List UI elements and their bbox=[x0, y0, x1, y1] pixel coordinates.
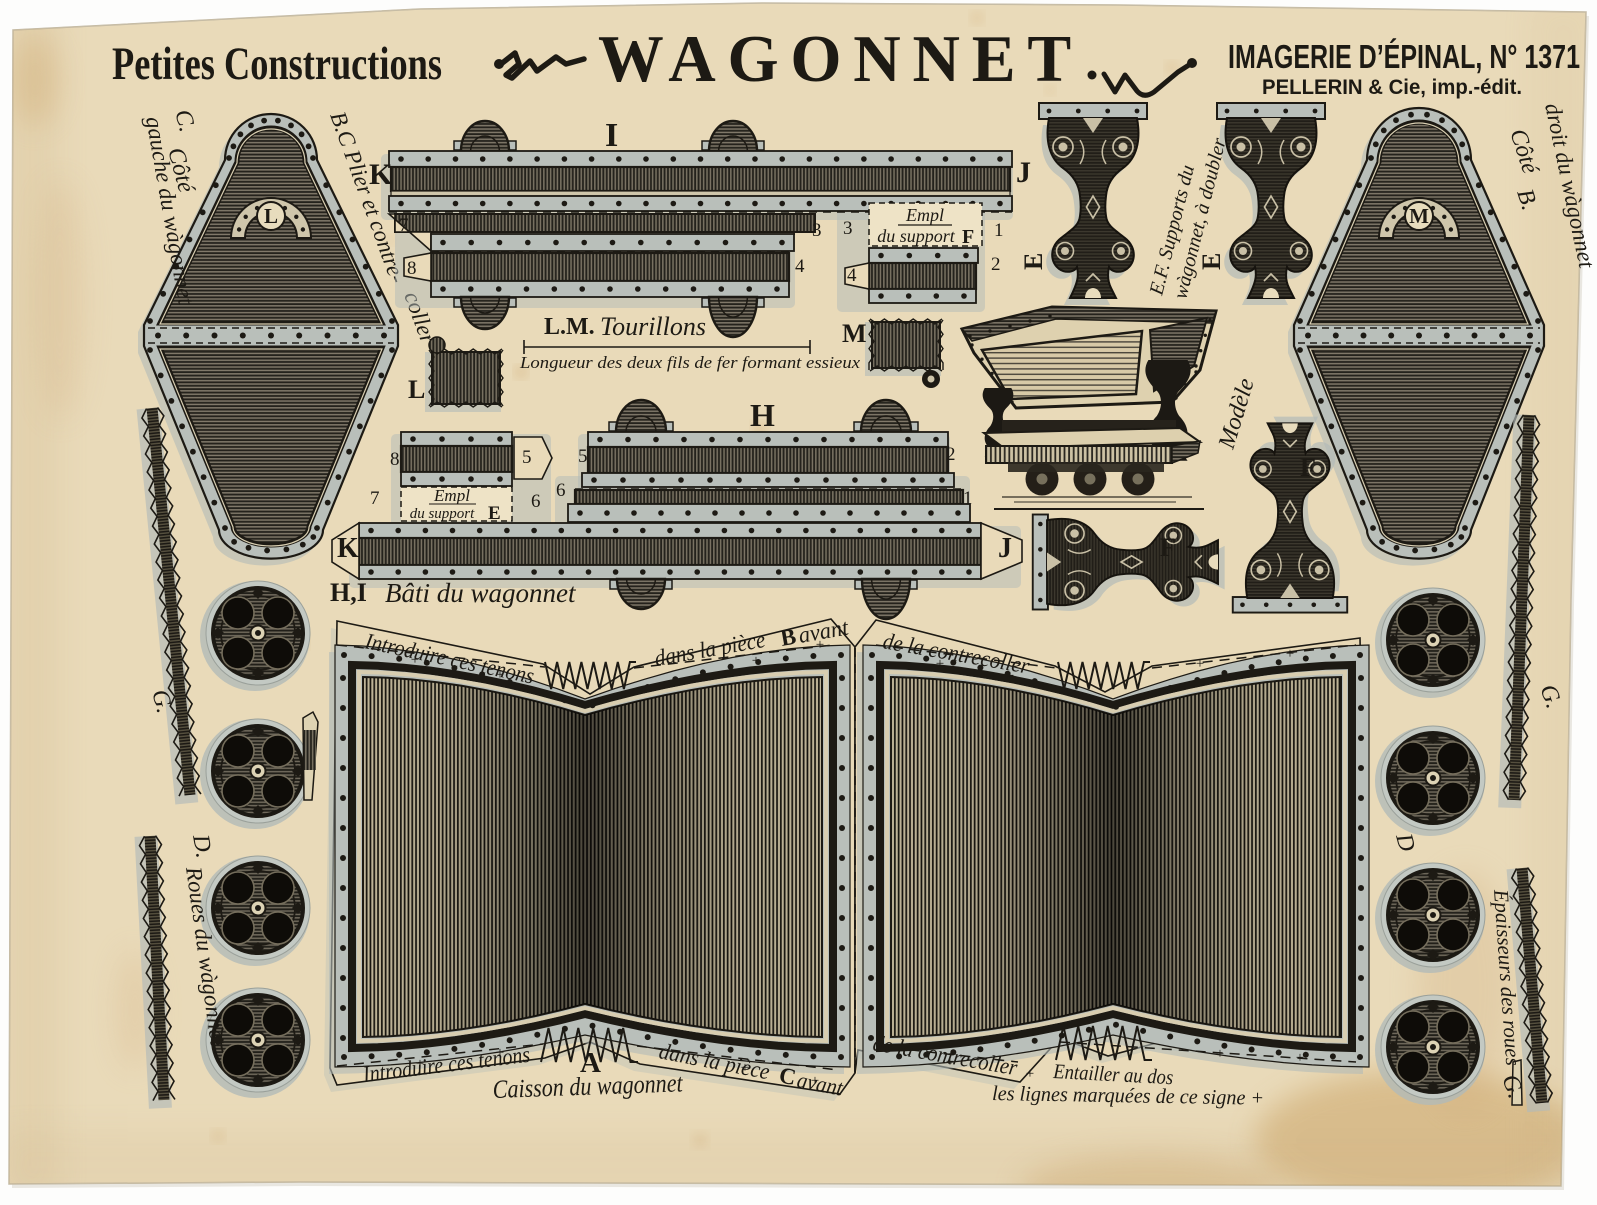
svg-text:WAGONNET: WAGONNET bbox=[598, 22, 1083, 96]
svg-text:8: 8 bbox=[407, 258, 417, 279]
svg-text:6: 6 bbox=[531, 491, 541, 512]
svg-text:E: E bbox=[488, 503, 501, 524]
svg-text:H,I: H,I bbox=[330, 578, 367, 607]
svg-text:6: 6 bbox=[556, 480, 566, 501]
svg-text:les lignes marquées de ce sign: les lignes marquées de ce signe + bbox=[992, 1081, 1264, 1110]
svg-text:+: + bbox=[1196, 656, 1204, 672]
svg-text:I: I bbox=[605, 117, 618, 154]
svg-text:Bâti du wagonnet: Bâti du wagonnet bbox=[385, 578, 577, 608]
svg-text:1: 1 bbox=[994, 220, 1004, 241]
svg-text:M: M bbox=[842, 319, 867, 348]
svg-text:J: J bbox=[1016, 156, 1031, 189]
svg-text:7: 7 bbox=[370, 488, 380, 509]
svg-text:K: K bbox=[337, 533, 359, 564]
svg-text:L.M.: L.M. bbox=[544, 314, 595, 340]
svg-text:3: 3 bbox=[812, 220, 822, 241]
svg-text:F: F bbox=[1160, 533, 1176, 562]
svg-text:D.: D. bbox=[187, 832, 217, 860]
svg-text:K: K bbox=[369, 158, 393, 191]
svg-text:8: 8 bbox=[390, 449, 400, 470]
svg-text:Tourillons: Tourillons bbox=[600, 312, 706, 341]
svg-text:4: 4 bbox=[795, 256, 805, 277]
svg-text:Empl: Empl bbox=[433, 486, 470, 505]
svg-text:5: 5 bbox=[522, 447, 532, 468]
svg-text:H: H bbox=[750, 397, 775, 433]
svg-text:+: + bbox=[1216, 1046, 1224, 1062]
svg-text:+: + bbox=[1296, 1050, 1304, 1066]
svg-text:Empl: Empl bbox=[905, 205, 944, 225]
svg-text:7: 7 bbox=[399, 215, 409, 236]
svg-text:PELLERIN & Cie, imp.-édit.: PELLERIN & Cie, imp.-édit. bbox=[1262, 76, 1522, 99]
svg-text:F: F bbox=[1300, 453, 1316, 482]
svg-text:Petites Constructions: Petites Constructions bbox=[112, 38, 442, 90]
svg-text:+: + bbox=[1286, 646, 1294, 662]
svg-text:F: F bbox=[962, 226, 974, 248]
svg-text:IMAGERIE D’ÉPINAL, N° 1371: IMAGERIE D’ÉPINAL, N° 1371 bbox=[1228, 38, 1580, 75]
svg-text:Longueur des deux fils de fer: Longueur des deux fils de fer formant es… bbox=[519, 353, 861, 372]
svg-text:5: 5 bbox=[578, 446, 588, 467]
svg-text:M: M bbox=[1409, 204, 1429, 228]
svg-text:J: J bbox=[998, 533, 1012, 564]
svg-text:du support: du support bbox=[410, 506, 475, 522]
svg-text:2: 2 bbox=[946, 444, 956, 465]
svg-text:+: + bbox=[752, 653, 760, 669]
svg-text:3: 3 bbox=[843, 218, 853, 239]
svg-text:4: 4 bbox=[847, 265, 857, 286]
svg-text:1: 1 bbox=[963, 488, 973, 509]
svg-text:+: + bbox=[1026, 1066, 1034, 1082]
svg-text:L: L bbox=[264, 204, 278, 228]
svg-text:2: 2 bbox=[991, 254, 1001, 275]
svg-text:E: E bbox=[1019, 253, 1048, 270]
svg-text:du support: du support bbox=[877, 226, 956, 246]
svg-text:L: L bbox=[408, 375, 425, 404]
